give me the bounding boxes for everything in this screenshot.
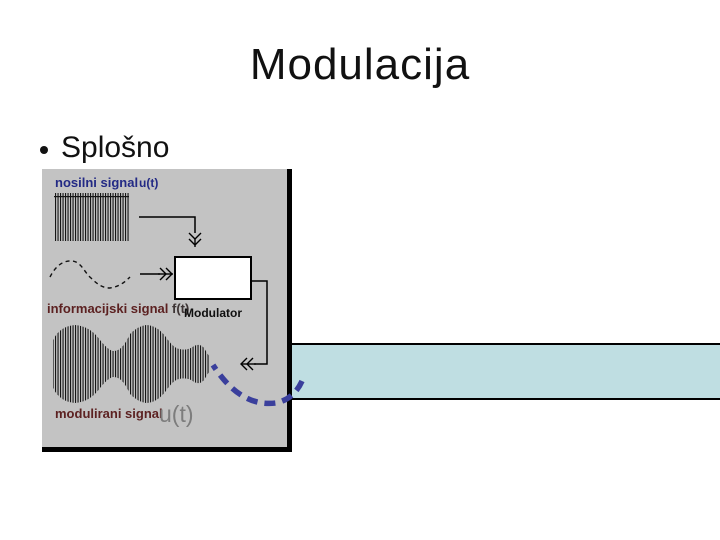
- highlight-bar: [292, 343, 720, 400]
- carrier-symbol-label: u(t): [139, 176, 158, 190]
- information-signal-label: informacijski signal f(t): [47, 301, 189, 316]
- slide-canvas: Modulacija Splošno: [0, 0, 720, 540]
- bullet-marker-icon: [40, 146, 48, 154]
- slide-title: Modulacija: [0, 40, 720, 90]
- bullet-item: Splošno: [40, 131, 169, 165]
- carrier-signal-label: nosilni signal: [55, 175, 138, 190]
- modulated-signal-label: modulirani signal: [55, 406, 163, 421]
- modulated-symbol-label: u(t): [159, 401, 194, 428]
- bullet-label: Splošno: [61, 131, 169, 165]
- modulator-label: Modulator: [175, 306, 251, 320]
